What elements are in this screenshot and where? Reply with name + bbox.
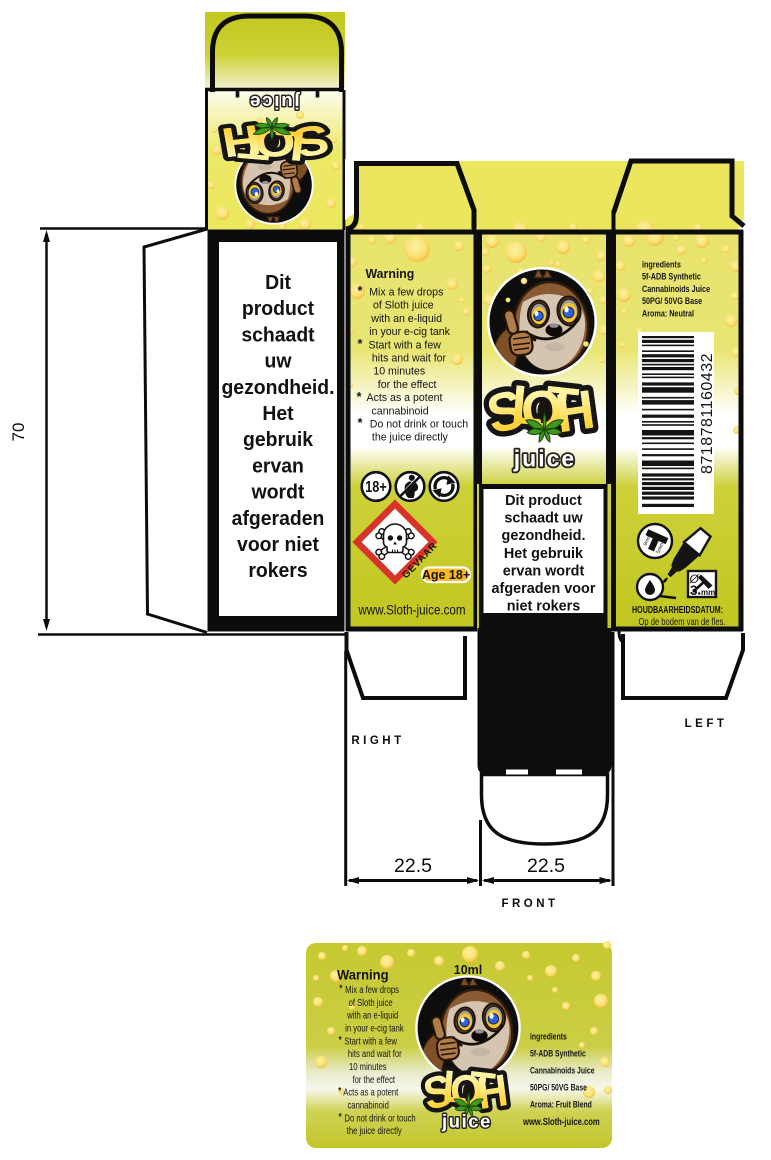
svg-text:LEFT: LEFT [685,718,728,730]
svg-text:Het: Het [262,403,294,425]
svg-text:product: product [242,298,315,320]
svg-text:ingredients: ingredients [642,258,681,269]
svg-text:5f-ADB Synthetic: 5f-ADB Synthetic [642,271,701,282]
svg-text:gezondheid.: gezondheid. [221,377,334,399]
svg-text:www.Sloth-juice.com: www.Sloth-juice.com [358,601,466,617]
svg-text:rokers: rokers [248,560,307,582]
svg-text:RIGHT: RIGHT [351,735,404,747]
svg-text:*: * [339,1034,342,1045]
svg-text:wordt: wordt [251,481,305,503]
svg-text:FRONT: FRONT [501,898,558,910]
svg-text:3: 3 [690,583,698,598]
svg-text:in your e-cig tank: in your e-cig tank [369,326,450,338]
svg-text:Acts as a potent: Acts as a potent [367,392,443,404]
svg-text:Do not drink or touch: Do not drink or touch [344,1113,415,1124]
svg-text:Aroma: Fruit Blend: Aroma: Fruit Blend [530,1100,592,1110]
svg-text:niet rokers: niet rokers [507,598,581,614]
svg-text:50PG/ 50VG Base: 50PG/ 50VG Base [530,1083,587,1093]
svg-text:Warning: Warning [366,267,415,281]
svg-text:mm: mm [701,588,715,597]
svg-text:the juice directly: the juice directly [347,1125,403,1136]
svg-text:Age 18+: Age 18+ [422,568,470,582]
svg-text:of Sloth juice: of Sloth juice [373,300,434,312]
svg-text:voor niet: voor niet [237,534,319,556]
svg-text:22.5: 22.5 [527,855,565,877]
svg-text:for the effect: for the effect [352,1074,395,1085]
svg-text:with an e-liquid: with an e-liquid [346,1010,398,1021]
svg-text:Op de bodem van de fles.: Op de bodem van de fles. [639,616,726,628]
svg-text:of Sloth juice: of Sloth juice [349,997,393,1008]
svg-text:10 minutes: 10 minutes [373,366,425,378]
svg-text:*: * [338,1085,341,1096]
svg-text:10 minutes: 10 minutes [349,1061,387,1072]
svg-text:afgeraden: afgeraden [232,508,325,530]
svg-text:ervan wordt: ervan wordt [503,563,585,579]
svg-text:Cannabinoids Juice: Cannabinoids Juice [530,1066,595,1076]
svg-text:Mix a few drops: Mix a few drops [345,984,399,995]
svg-text:www.Sloth-juice.com: www.Sloth-juice.com [522,1116,600,1127]
svg-text:Het gebruik: Het gebruik [504,546,584,562]
svg-text:afgeraden voor: afgeraden voor [492,581,596,597]
svg-text:18+: 18+ [365,479,387,496]
svg-text:Do not drink or touch: Do not drink or touch [370,419,468,431]
svg-text:*: * [339,983,342,994]
svg-text:gebruik: gebruik [243,429,313,451]
svg-text:*: * [339,1111,342,1122]
svg-text:Warning: Warning [337,967,389,983]
svg-text:cannabinoid: cannabinoid [372,405,429,417]
svg-text:5f-ADB Synthetic: 5f-ADB Synthetic [530,1049,586,1059]
svg-text:Acts as a potent: Acts as a potent [343,1087,399,1098]
svg-text:in your e-cig tank: in your e-cig tank [345,1023,404,1034]
svg-text:cannabinoid: cannabinoid [347,1100,388,1111]
svg-text:8718781160432: 8718781160432 [699,353,716,474]
svg-text:ervan: ervan [252,455,304,477]
svg-text:Aroma: Neutral: Aroma: Neutral [642,307,694,318]
svg-text:Start with a few: Start with a few [344,1036,397,1047]
svg-text:gezondheid.: gezondheid. [502,528,586,544]
svg-text:hits and wait for: hits and wait for [372,353,447,365]
svg-text:ingredients: ingredients [530,1032,567,1042]
svg-text:for the effect: for the effect [378,379,437,391]
svg-text:Dit product: Dit product [505,493,582,509]
svg-text:Start with a few: Start with a few [369,339,442,351]
svg-text:uw: uw [265,350,293,372]
svg-text:schaadt: schaadt [241,324,315,346]
svg-text:22.5: 22.5 [394,855,432,877]
svg-text:70: 70 [9,423,28,442]
svg-text:with an e-liquid: with an e-liquid [370,313,442,325]
svg-text:50PG/ 50VG Base: 50PG/ 50VG Base [642,295,702,306]
svg-text:HOUDBAARHEIDSDATUM:: HOUDBAARHEIDSDATUM: [632,604,723,616]
svg-text:schaadt uw: schaadt uw [504,510,583,526]
svg-text:the juice directly: the juice directly [372,432,449,444]
svg-text:Mix a few drops: Mix a few drops [369,287,443,299]
svg-text:hits and wait for: hits and wait for [348,1048,402,1059]
svg-text:10ml: 10ml [454,963,483,977]
svg-text:Cannabinoids Juice: Cannabinoids Juice [642,283,710,294]
svg-text:Dit: Dit [265,272,291,294]
